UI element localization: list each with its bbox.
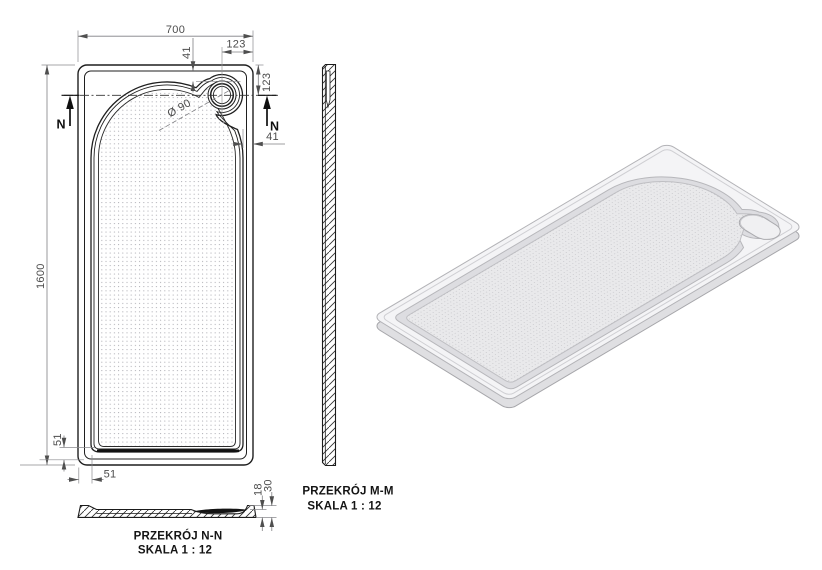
dim-drain-offset-top: 123 <box>226 39 245 51</box>
dim-overall-width: 700 <box>166 24 185 36</box>
dim-drain-offset-right: 123 <box>261 73 273 92</box>
dim-edge-height: 30 <box>263 479 275 492</box>
iso-view <box>373 143 803 410</box>
section-letter-left: N <box>56 118 65 132</box>
section-mm-title: PRZEKRÓJ M-M <box>302 485 393 498</box>
section-letter-right: N <box>270 120 279 134</box>
dim-overall-length: 1600 <box>35 263 47 289</box>
section-mm-drain-pocket <box>326 71 330 107</box>
drawing-svg: Ø 90 700 123 123 41 41 1600 51 <box>0 0 822 570</box>
section-arrow-right <box>263 96 271 110</box>
section-nn-view: 18 30 PRZEKRÓJ N-N SKALA 1 : 12 <box>78 479 277 556</box>
section-mm-scale: SKALA 1 : 12 <box>307 501 381 513</box>
section-mark-right: N <box>258 95 279 133</box>
dim-margin-bottom: 51 <box>52 433 64 446</box>
dim-margin-left: 51 <box>104 469 117 481</box>
section-nn-drain-pocket <box>193 509 247 514</box>
section-nn-title: PRZEKRÓJ N-N <box>134 530 223 543</box>
dim-gap-top: 41 <box>181 46 193 59</box>
basin-floor-texture <box>98 81 235 446</box>
section-mark-left: N <box>56 95 79 131</box>
technical-drawing-canvas: Ø 90 700 123 123 41 41 1600 51 <box>0 0 822 570</box>
plan-view: Ø 90 700 123 123 41 41 1600 51 <box>20 24 285 484</box>
section-mm-profile <box>323 65 336 466</box>
section-nn-scale: SKALA 1 : 12 <box>138 545 212 557</box>
section-arrow-left <box>66 96 74 110</box>
section-mm-view: PRZEKRÓJ M-M SKALA 1 : 12 <box>302 65 393 513</box>
